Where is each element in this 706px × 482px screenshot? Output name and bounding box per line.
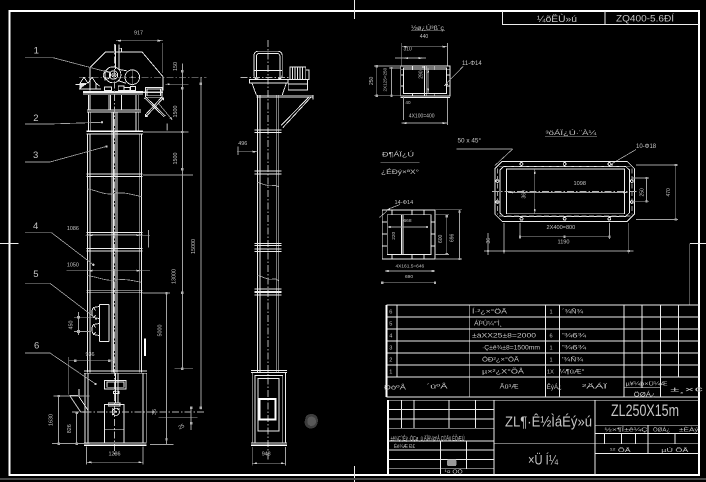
svg-text:ÖØÁ¿: ÖØÁ¿	[634, 391, 656, 398]
svg-text:ÊýÁ¿: ÊýÁ¿	[547, 382, 562, 391]
svg-text:×Ü Í¼: ×Ü Í¼	[528, 451, 558, 468]
svg-text:½×¶Î±ê¼Ç: ½×¶Î±ê¼Ç	[605, 427, 648, 434]
svg-text:1630: 1630	[49, 414, 55, 426]
svg-text:36: 36	[152, 409, 158, 415]
svg-text:917: 917	[134, 31, 143, 37]
svg-text:4X100=400: 4X100=400	[409, 114, 435, 120]
svg-text:36: 36	[486, 238, 492, 244]
svg-text:1086: 1086	[67, 226, 79, 232]
svg-text:±ÈÀý: ±ÈÀý	[679, 427, 699, 434]
svg-text:2: 2	[33, 113, 38, 124]
svg-text:4: 4	[389, 334, 392, 340]
svg-text:6: 6	[550, 334, 553, 340]
svg-text:5: 5	[389, 322, 392, 328]
svg-text:50 x 45°: 50 x 45°	[458, 137, 482, 145]
svg-text:µ¥¼þ×Ü¼Æ: µ¥¼þ×Ü¼Æ	[626, 380, 668, 387]
svg-text:696: 696	[450, 233, 456, 242]
svg-text:1500: 1500	[173, 153, 179, 165]
svg-text:496: 496	[238, 141, 247, 147]
svg-text:µ×²¿X°ÕÅ: µ×²¿X°ÕÅ	[482, 369, 524, 376]
svg-text:14-Φ14: 14-Φ14	[395, 200, 414, 206]
svg-text:1500: 1500	[173, 106, 179, 118]
svg-text:ZQ400-5.6ÐÍ: ZQ400-5.6ÐÍ	[616, 14, 675, 24]
svg-text:4: 4	[33, 221, 38, 232]
svg-text:´¾Ñ¾: ´¾Ñ¾	[562, 309, 584, 316]
svg-text:±¸×¢: ±¸×¢	[670, 385, 703, 394]
svg-text:5000: 5000	[158, 325, 164, 337]
svg-text:¿ÉÐý×ªX°: ¿ÉÐý×ªX°	[381, 167, 420, 176]
svg-text:470: 470	[666, 188, 672, 197]
svg-text:'¾Ñ¾: '¾Ñ¾	[562, 357, 584, 364]
svg-text:¼¶ùÆ°: ¼¶ùÆ°	[560, 370, 586, 376]
svg-text:ÁÏ²Û¼°'Ì¸: ÁÏ²Û¼°'Ì¸	[474, 321, 502, 328]
svg-text:13000: 13000	[172, 269, 178, 284]
svg-text:'¾6¾: '¾6¾	[562, 346, 588, 352]
svg-text:1X: 1X	[547, 370, 554, 376]
svg-text:948: 948	[262, 452, 271, 458]
svg-text:690: 690	[405, 274, 413, 280]
svg-text:250: 250	[639, 188, 645, 197]
svg-text:ÐòºÅ: ÐòºÅ	[384, 383, 407, 392]
svg-text:±àXX25±8=2000: ±àXX25±8=2000	[472, 334, 537, 340]
svg-text:'¾6¾: '¾6¾	[562, 334, 588, 340]
svg-text:1: 1	[550, 310, 553, 316]
svg-text:1050: 1050	[67, 262, 79, 268]
svg-text:10-Φ18: 10-Φ18	[636, 144, 657, 150]
svg-text:´úºÅ: ´úºÅ	[427, 382, 449, 391]
svg-text:¼õËÙ»ú: ¼õËÙ»ú	[537, 14, 577, 25]
svg-text:6: 6	[389, 310, 392, 316]
svg-text:600: 600	[438, 234, 444, 243]
svg-text:3: 3	[389, 346, 392, 352]
svg-text:4X161.5=646: 4X161.5=646	[396, 263, 425, 269]
svg-text:¹¤ ÒÕ: ¹¤ ÒÕ	[445, 469, 464, 476]
svg-text:ZL250X15m: ZL250X15m	[611, 402, 679, 420]
svg-text:220: 220	[391, 231, 397, 239]
svg-text:360: 360	[521, 190, 527, 199]
svg-text:ZL¶·Ê½ÌáÉý»ú: ZL¶·Ê½ÌáÉý»ú	[505, 414, 592, 431]
svg-text:3: 3	[33, 150, 38, 161]
svg-text:1: 1	[550, 346, 553, 352]
svg-text:450: 450	[69, 321, 75, 330]
svg-text:2: 2	[389, 358, 392, 364]
svg-text:2X400=800: 2X400=800	[547, 225, 576, 231]
svg-text:290: 290	[419, 70, 425, 79]
svg-text:Ð¶ÁÏ¿Ú: Ð¶ÁÏ¿Ú	[382, 150, 414, 159]
svg-text:310: 310	[404, 46, 413, 52]
svg-text:668: 668	[404, 218, 412, 224]
svg-text:936: 936	[86, 352, 95, 358]
svg-text:ÖØÁ¿: ÖØÁ¿	[653, 427, 671, 434]
svg-text:150: 150	[173, 62, 179, 71]
svg-text:6: 6	[34, 341, 39, 352]
svg-text:440: 440	[420, 34, 429, 40]
svg-text:ÖÐ²¿×°ÖÃ: ÖÐ²¿×°ÖÃ	[482, 357, 519, 364]
svg-text:2X125=250: 2X125=250	[383, 67, 388, 91]
svg-text:11-Φ14: 11-Φ14	[462, 61, 482, 67]
svg-text:²ÄÁÏ: ²ÄÁÏ	[582, 382, 607, 391]
svg-text:1098: 1098	[574, 181, 586, 187]
svg-text:1286: 1286	[109, 451, 121, 457]
svg-text:250: 250	[369, 76, 375, 85]
svg-text:±ê¼Ç´¦Êý ·ÖÇø ¸ü¸ÄÎÄ¼þºÅ Ç©Ãû: ±ê¼Ç´¦Êý ·ÖÇø ¸ü¸ÄÎÄ¼þºÅ Ç©Ãû ÈÕÆÚ	[391, 435, 465, 443]
svg-text:·Ç±ê¾±8=1500mm: ·Ç±ê¾±8=1500mm	[482, 346, 540, 352]
svg-text:Ãû³Æ: Ãû³Æ	[500, 382, 520, 391]
svg-text:1: 1	[389, 370, 392, 376]
svg-text:1190: 1190	[558, 240, 570, 246]
svg-text:Éè¼Æ Ð£: Éè¼Æ Ð£	[394, 443, 415, 450]
svg-text:826: 826	[67, 424, 73, 433]
svg-text:15000: 15000	[191, 239, 197, 254]
svg-text:1: 1	[550, 358, 553, 364]
svg-text:1: 1	[34, 46, 39, 57]
svg-text:Í·²¿×°ÖÃ: Í·²¿×°ÖÃ	[472, 309, 507, 316]
svg-text:5: 5	[33, 269, 38, 280]
svg-text:40: 40	[405, 100, 411, 105]
